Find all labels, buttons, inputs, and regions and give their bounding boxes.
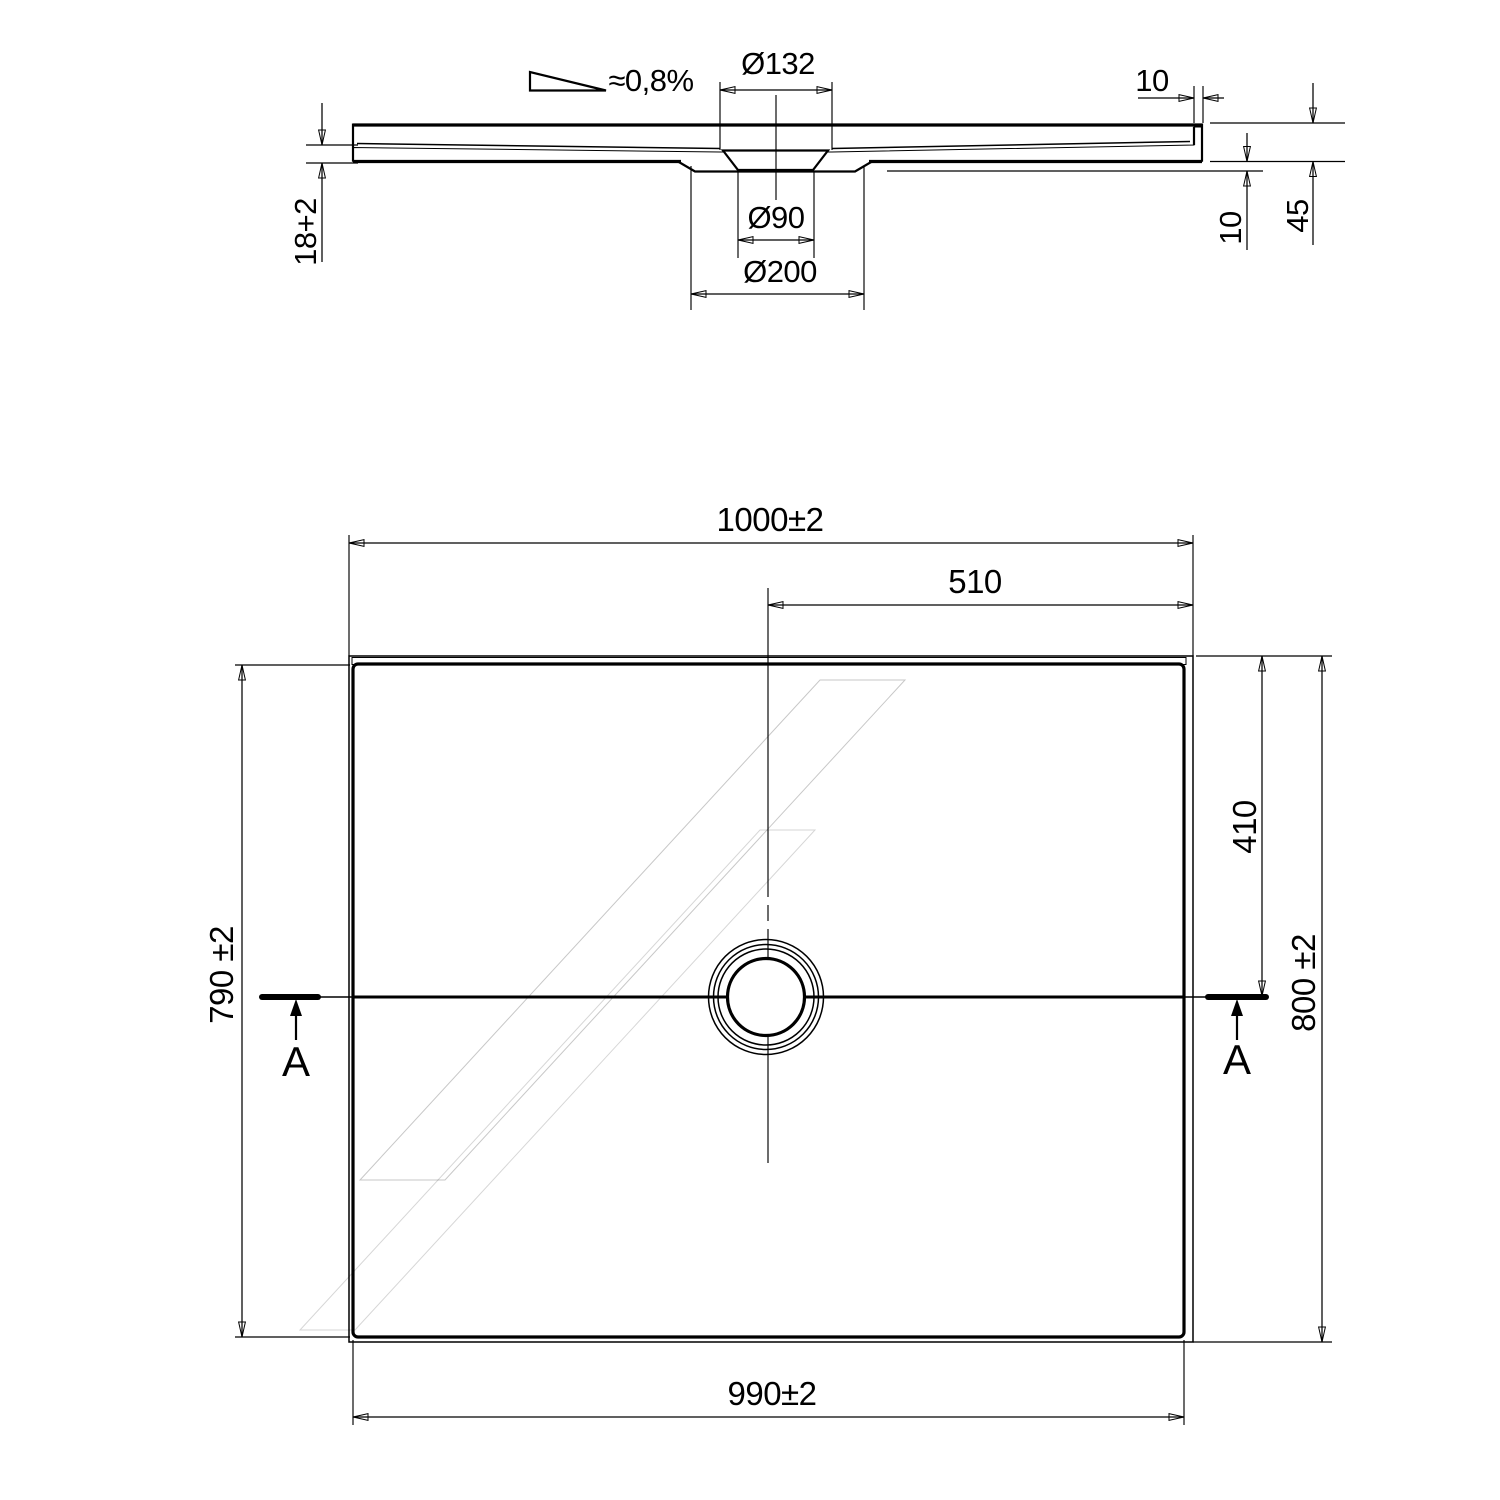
dim-total-height-label: 45	[1280, 199, 1315, 232]
dim-drain-offset-x: 510	[768, 563, 1193, 605]
dim-height-left: 790 ±2	[203, 665, 350, 1337]
dim-diameter-200: Ø200	[691, 166, 864, 310]
dim-width-top-label: 1000±2	[717, 501, 824, 538]
dim-rim-width: 10	[1135, 63, 1224, 123]
dim-drain-offset-y-label: 410	[1226, 800, 1263, 854]
dim-base-clearance: 10	[887, 133, 1263, 250]
slope-label: ≈0,8%	[608, 63, 693, 98]
slope-symbol-icon	[530, 72, 606, 91]
floor-line-right	[832, 142, 1190, 149]
section-view: ≈0,8% Ø132 Ø90 Ø200	[288, 46, 1345, 310]
dim-height-right-label: 800 ±2	[1285, 934, 1322, 1032]
cut-marker-left: A	[282, 999, 310, 1085]
dim-base-clearance-label: 10	[1213, 211, 1248, 245]
cut-label-right: A	[1223, 1036, 1251, 1083]
cut-label-left: A	[282, 1038, 310, 1085]
dim-diameter-132-label: Ø132	[741, 46, 815, 81]
cut-arrow-left-icon	[290, 999, 302, 1016]
dim-width-bottom-label: 990±2	[727, 1375, 816, 1412]
dim-diameter-200-label: Ø200	[743, 254, 817, 289]
dim-width-bottom: 990±2	[353, 1340, 1184, 1425]
dim-diameter-132: Ø132	[720, 46, 832, 200]
technical-drawing-page: ≈0,8% Ø132 Ø90 Ø200	[0, 0, 1500, 1500]
plan-view: A A 1000±2 510 790 ±2	[203, 501, 1332, 1425]
cut-arrow-right-icon	[1231, 999, 1243, 1016]
cut-marker-right: A	[1223, 999, 1251, 1083]
dim-drain-offset-x-label: 510	[948, 563, 1002, 600]
dim-height-left-label: 790 ±2	[203, 926, 240, 1024]
drain-waste-hole	[728, 959, 805, 1036]
shower-tray-drawing: ≈0,8% Ø132 Ø90 Ø200	[0, 0, 1500, 1500]
dim-width-top: 1000±2	[349, 501, 1193, 656]
dim-diameter-90-label: Ø90	[747, 200, 804, 235]
dim-edge-thickness-label: 18+2	[288, 198, 323, 266]
dim-drain-offset-y: 410	[1226, 656, 1263, 996]
dim-edge-thickness: 18+2	[288, 103, 358, 266]
dim-rim-width-label: 10	[1135, 63, 1169, 98]
